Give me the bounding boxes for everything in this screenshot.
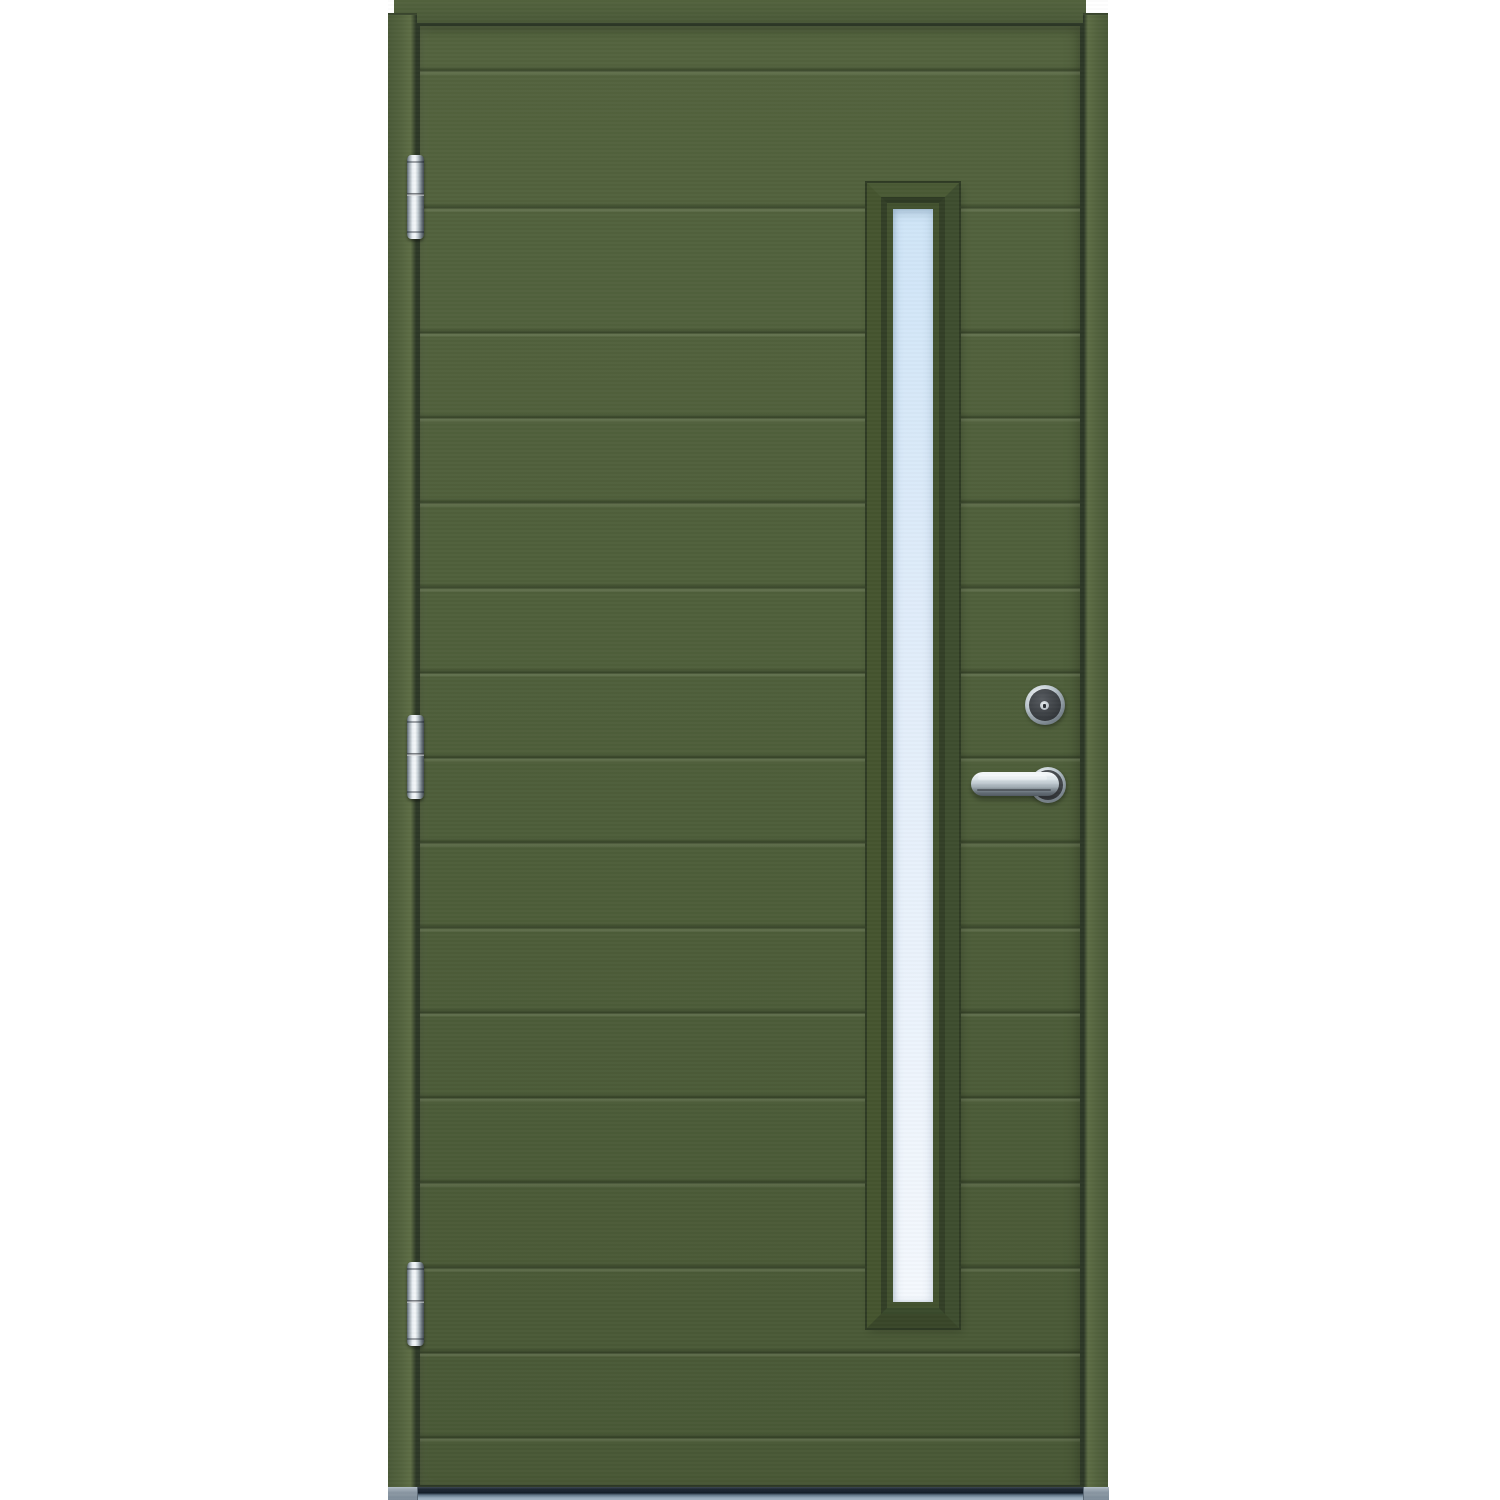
hinge-seam bbox=[407, 1300, 424, 1303]
hinge-cap-top bbox=[407, 1268, 424, 1270]
door-board-groove bbox=[420, 498, 1080, 507]
door-board-groove bbox=[420, 838, 1080, 847]
window-trim bbox=[867, 183, 959, 1328]
lever-highlight bbox=[978, 775, 1047, 781]
window-bevel bbox=[881, 197, 945, 1314]
door-board-groove bbox=[420, 923, 1080, 932]
door-hinge bbox=[407, 155, 424, 239]
hinge-cap-top bbox=[407, 721, 424, 723]
door-board-groove bbox=[420, 1093, 1080, 1102]
door-handle-lever bbox=[971, 772, 1059, 796]
hinge-seam bbox=[407, 193, 424, 196]
threshold-sill bbox=[417, 1487, 1083, 1500]
door-board-groove bbox=[420, 1178, 1080, 1187]
door-hinge bbox=[407, 1262, 424, 1346]
lever-shadowline bbox=[977, 789, 1051, 791]
door-board-groove bbox=[420, 413, 1080, 422]
hinge-cap-bottom bbox=[407, 1338, 424, 1340]
door-board-groove bbox=[420, 1433, 1080, 1442]
door-hinge bbox=[407, 715, 424, 799]
door-frame-right-jamb bbox=[1083, 13, 1108, 1489]
door-product-image bbox=[0, 0, 1500, 1500]
lock-cylinder bbox=[1025, 685, 1065, 725]
door-board-groove bbox=[420, 753, 1080, 762]
hinge-cap-bottom bbox=[407, 231, 424, 233]
door-board-groove bbox=[420, 1263, 1080, 1272]
door-board-groove bbox=[420, 1008, 1080, 1017]
threshold-cap-left bbox=[388, 1487, 418, 1500]
door-board-groove bbox=[420, 668, 1080, 677]
door-board-groove bbox=[420, 66, 1080, 75]
door-board-groove bbox=[420, 203, 1080, 212]
door-board-groove bbox=[420, 1348, 1080, 1357]
door-board-groove bbox=[420, 328, 1080, 337]
keyhole-icon bbox=[1040, 701, 1049, 710]
hinge-cap-top bbox=[407, 161, 424, 163]
threshold-cap-right bbox=[1083, 1487, 1109, 1500]
hinge-cap-bottom bbox=[407, 791, 424, 793]
keyhole-slot bbox=[1043, 704, 1046, 708]
lock-face bbox=[1029, 689, 1061, 721]
hinge-seam bbox=[407, 753, 424, 756]
window-glass bbox=[893, 209, 933, 1302]
door-board-groove bbox=[420, 583, 1080, 592]
